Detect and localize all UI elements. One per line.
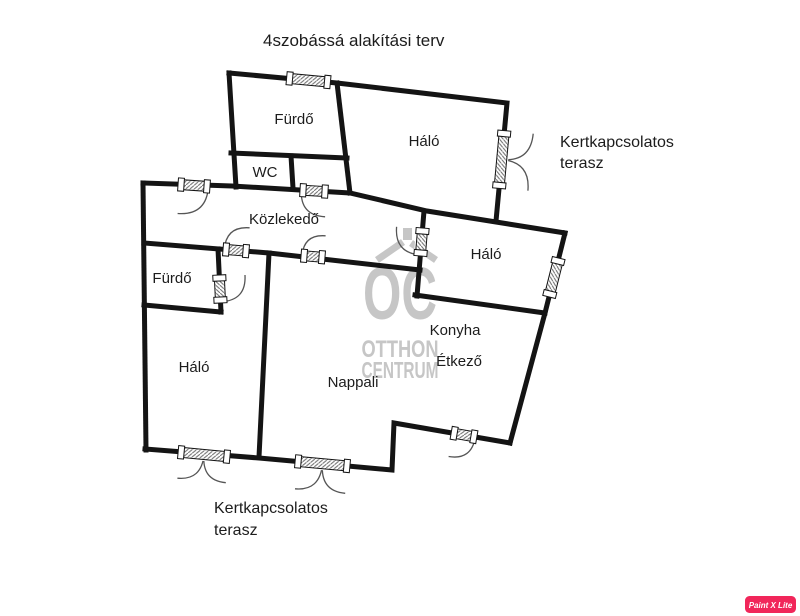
terrace-bottom-line2: terasz xyxy=(214,522,258,539)
room-label-furdo-left: Fürdő xyxy=(152,270,191,287)
wall-left-exterior xyxy=(143,183,146,450)
door-mid-bedroom xyxy=(414,228,429,257)
door-corridor-living xyxy=(301,249,326,264)
door-shower-room xyxy=(300,184,329,199)
door-entry xyxy=(178,178,211,193)
paint-x-lite-badge: Paint X Lite xyxy=(745,596,796,613)
terrace-right-line1: Kertkapcsolatos xyxy=(560,134,674,151)
room-label-nappali: Nappali xyxy=(328,374,379,391)
door-bath2 xyxy=(213,275,227,304)
room-label-konyha: Konyha xyxy=(430,322,482,339)
terrace-bottom-line1: Kertkapcsolatos xyxy=(214,500,328,517)
door-corridor-nook xyxy=(223,243,250,258)
floor-plan-page: OC OTTHON CENTRUM xyxy=(0,0,800,616)
room-label-etkezo: Étkező xyxy=(436,353,482,370)
room-label-halo-top-right: Háló xyxy=(409,133,440,150)
room-label-kozlekedo: Közlekedő xyxy=(249,211,319,228)
room-label-wc: WC xyxy=(253,164,278,181)
room-label-halo-bottom: Háló xyxy=(179,359,210,376)
room-label-furdo-top: Fürdő xyxy=(274,111,313,128)
badge-label: Paint X Lite xyxy=(749,601,793,610)
watermark-chimney-icon xyxy=(403,228,412,240)
floor-plan-image: OC OTTHON CENTRUM xyxy=(0,0,800,616)
wall-wc-right xyxy=(291,156,293,188)
room-label-halo-middle: Háló xyxy=(471,246,502,263)
plan-title: 4szobássá alakítási terv xyxy=(263,31,445,50)
terrace-right-line2: terasz xyxy=(560,155,604,172)
